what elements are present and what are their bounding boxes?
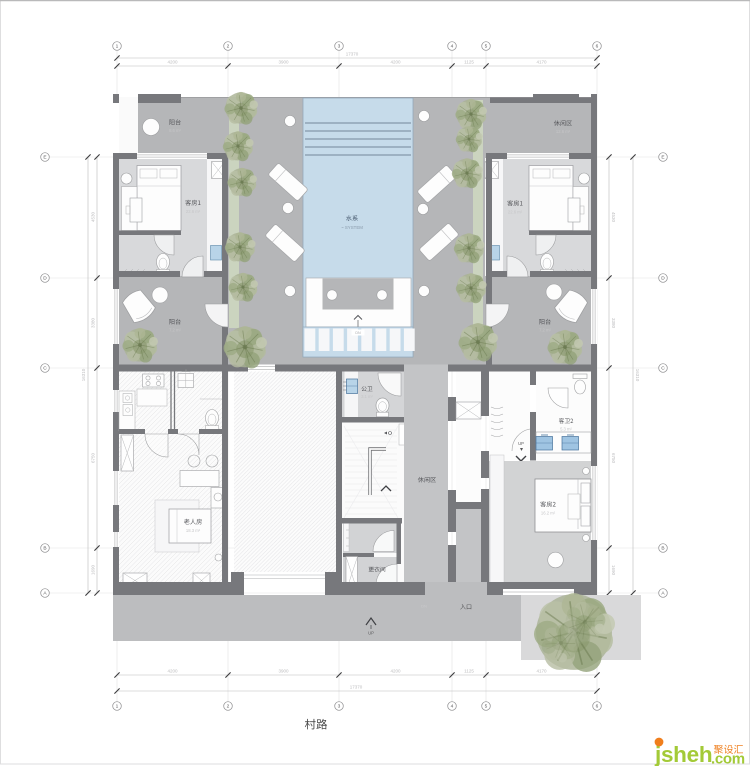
svg-text:4530: 4530 — [91, 211, 96, 222]
svg-text:7.2 m²: 7.2 m² — [539, 328, 551, 333]
svg-text:D: D — [43, 276, 47, 282]
svg-text:6750: 6750 — [611, 453, 616, 464]
svg-text:18.3 m²: 18.3 m² — [186, 528, 201, 533]
svg-text:jsheh: jsheh — [654, 742, 712, 766]
svg-text:.com: .com — [711, 751, 745, 767]
svg-text:3: 3 — [338, 44, 341, 50]
svg-text:3900: 3900 — [278, 60, 289, 65]
svg-text:4: 4 — [451, 704, 454, 710]
svg-text:4200: 4200 — [167, 60, 178, 65]
svg-text:3.1 m²: 3.1 m² — [361, 394, 373, 399]
svg-text:17370: 17370 — [350, 685, 363, 690]
svg-text:4170: 4170 — [536, 60, 547, 65]
svg-text:C: C — [661, 366, 665, 372]
svg-text:2: 2 — [227, 704, 230, 710]
svg-text:1: 1 — [116, 704, 119, 710]
svg-text:DN: DN — [421, 604, 427, 609]
svg-text:UP: UP — [518, 441, 524, 446]
svg-text:3900: 3900 — [278, 669, 289, 674]
svg-text:16310: 16310 — [81, 368, 86, 381]
svg-text:5.3 m²: 5.3 m² — [560, 427, 572, 432]
svg-text:E: E — [43, 155, 46, 161]
svg-text:1125: 1125 — [464, 669, 474, 674]
svg-text:1125: 1125 — [464, 60, 474, 65]
svg-text:16310: 16310 — [635, 369, 640, 382]
svg-text:16.2 m²: 16.2 m² — [541, 511, 556, 516]
svg-text:22.6 m²: 22.6 m² — [186, 209, 201, 214]
svg-text:7.2 m²: 7.2 m² — [169, 328, 181, 333]
svg-text:3380: 3380 — [611, 318, 616, 329]
svg-text:2: 2 — [227, 44, 230, 50]
svg-text:4200: 4200 — [390, 60, 401, 65]
svg-text:17370: 17370 — [346, 52, 359, 57]
svg-text:5: 5 — [485, 704, 488, 710]
svg-text:8.6 m²: 8.6 m² — [169, 128, 181, 133]
svg-text:16.1 m²: 16.1 m² — [420, 486, 435, 491]
svg-text:UP: UP — [368, 631, 374, 636]
svg-text:B: B — [661, 546, 664, 552]
svg-text:4200: 4200 — [390, 669, 401, 674]
svg-text:4200: 4200 — [167, 669, 178, 674]
svg-text:6: 6 — [596, 704, 599, 710]
svg-text:5: 5 — [485, 44, 488, 50]
svg-text:3380: 3380 — [91, 317, 96, 328]
svg-text:3: 3 — [338, 704, 341, 710]
svg-text:~ SYSTEM: ~ SYSTEM — [341, 225, 363, 230]
svg-text:1690: 1690 — [91, 564, 96, 575]
svg-text:4530: 4530 — [611, 212, 616, 223]
svg-text:4170: 4170 — [536, 669, 547, 674]
svg-text:D: D — [661, 276, 665, 282]
svg-text:22.6 m²: 22.6 m² — [508, 210, 523, 215]
svg-text:1690: 1690 — [611, 565, 616, 576]
svg-text:DN: DN — [355, 331, 361, 335]
svg-text:12.6 m²: 12.6 m² — [556, 129, 571, 134]
svg-text:C: C — [43, 366, 47, 372]
svg-text:4: 4 — [451, 44, 454, 50]
svg-text:E: E — [661, 155, 664, 161]
svg-text:B: B — [43, 546, 46, 552]
svg-text:6: 6 — [596, 44, 599, 50]
svg-text:6750: 6750 — [91, 452, 96, 463]
svg-text:1: 1 — [116, 44, 119, 50]
